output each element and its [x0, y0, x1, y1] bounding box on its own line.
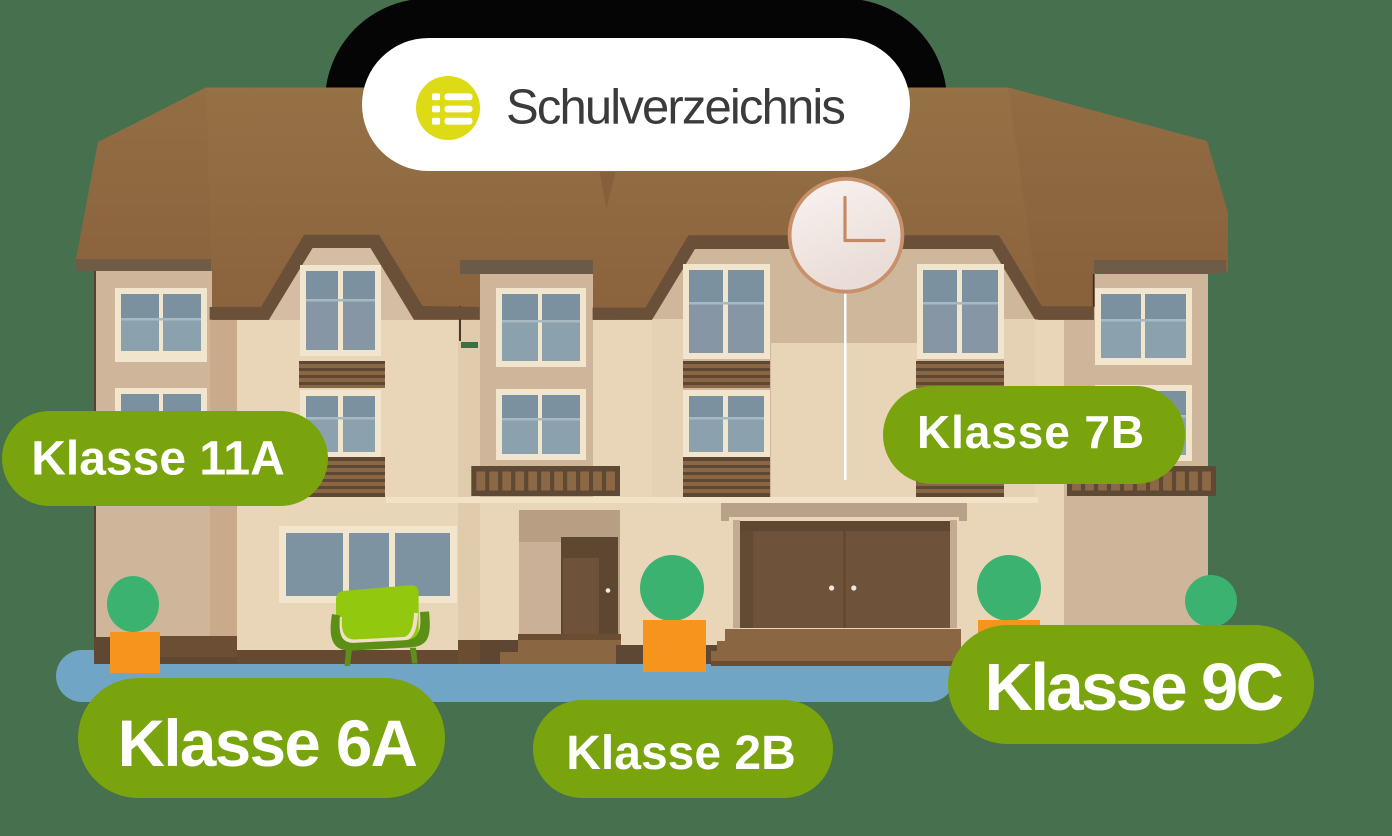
svg-text:Klasse 11A: Klasse 11A [31, 433, 285, 486]
svg-text:Klasse 7B: Klasse 7B [917, 406, 1145, 458]
svg-text:Klasse 9C: Klasse 9C [985, 650, 1283, 725]
svg-text:Klasse 2B: Klasse 2B [566, 727, 795, 780]
svg-text:Klasse 6A: Klasse 6A [118, 707, 417, 780]
svg-text:Schulverzeichnis: Schulverzeichnis [506, 81, 844, 135]
